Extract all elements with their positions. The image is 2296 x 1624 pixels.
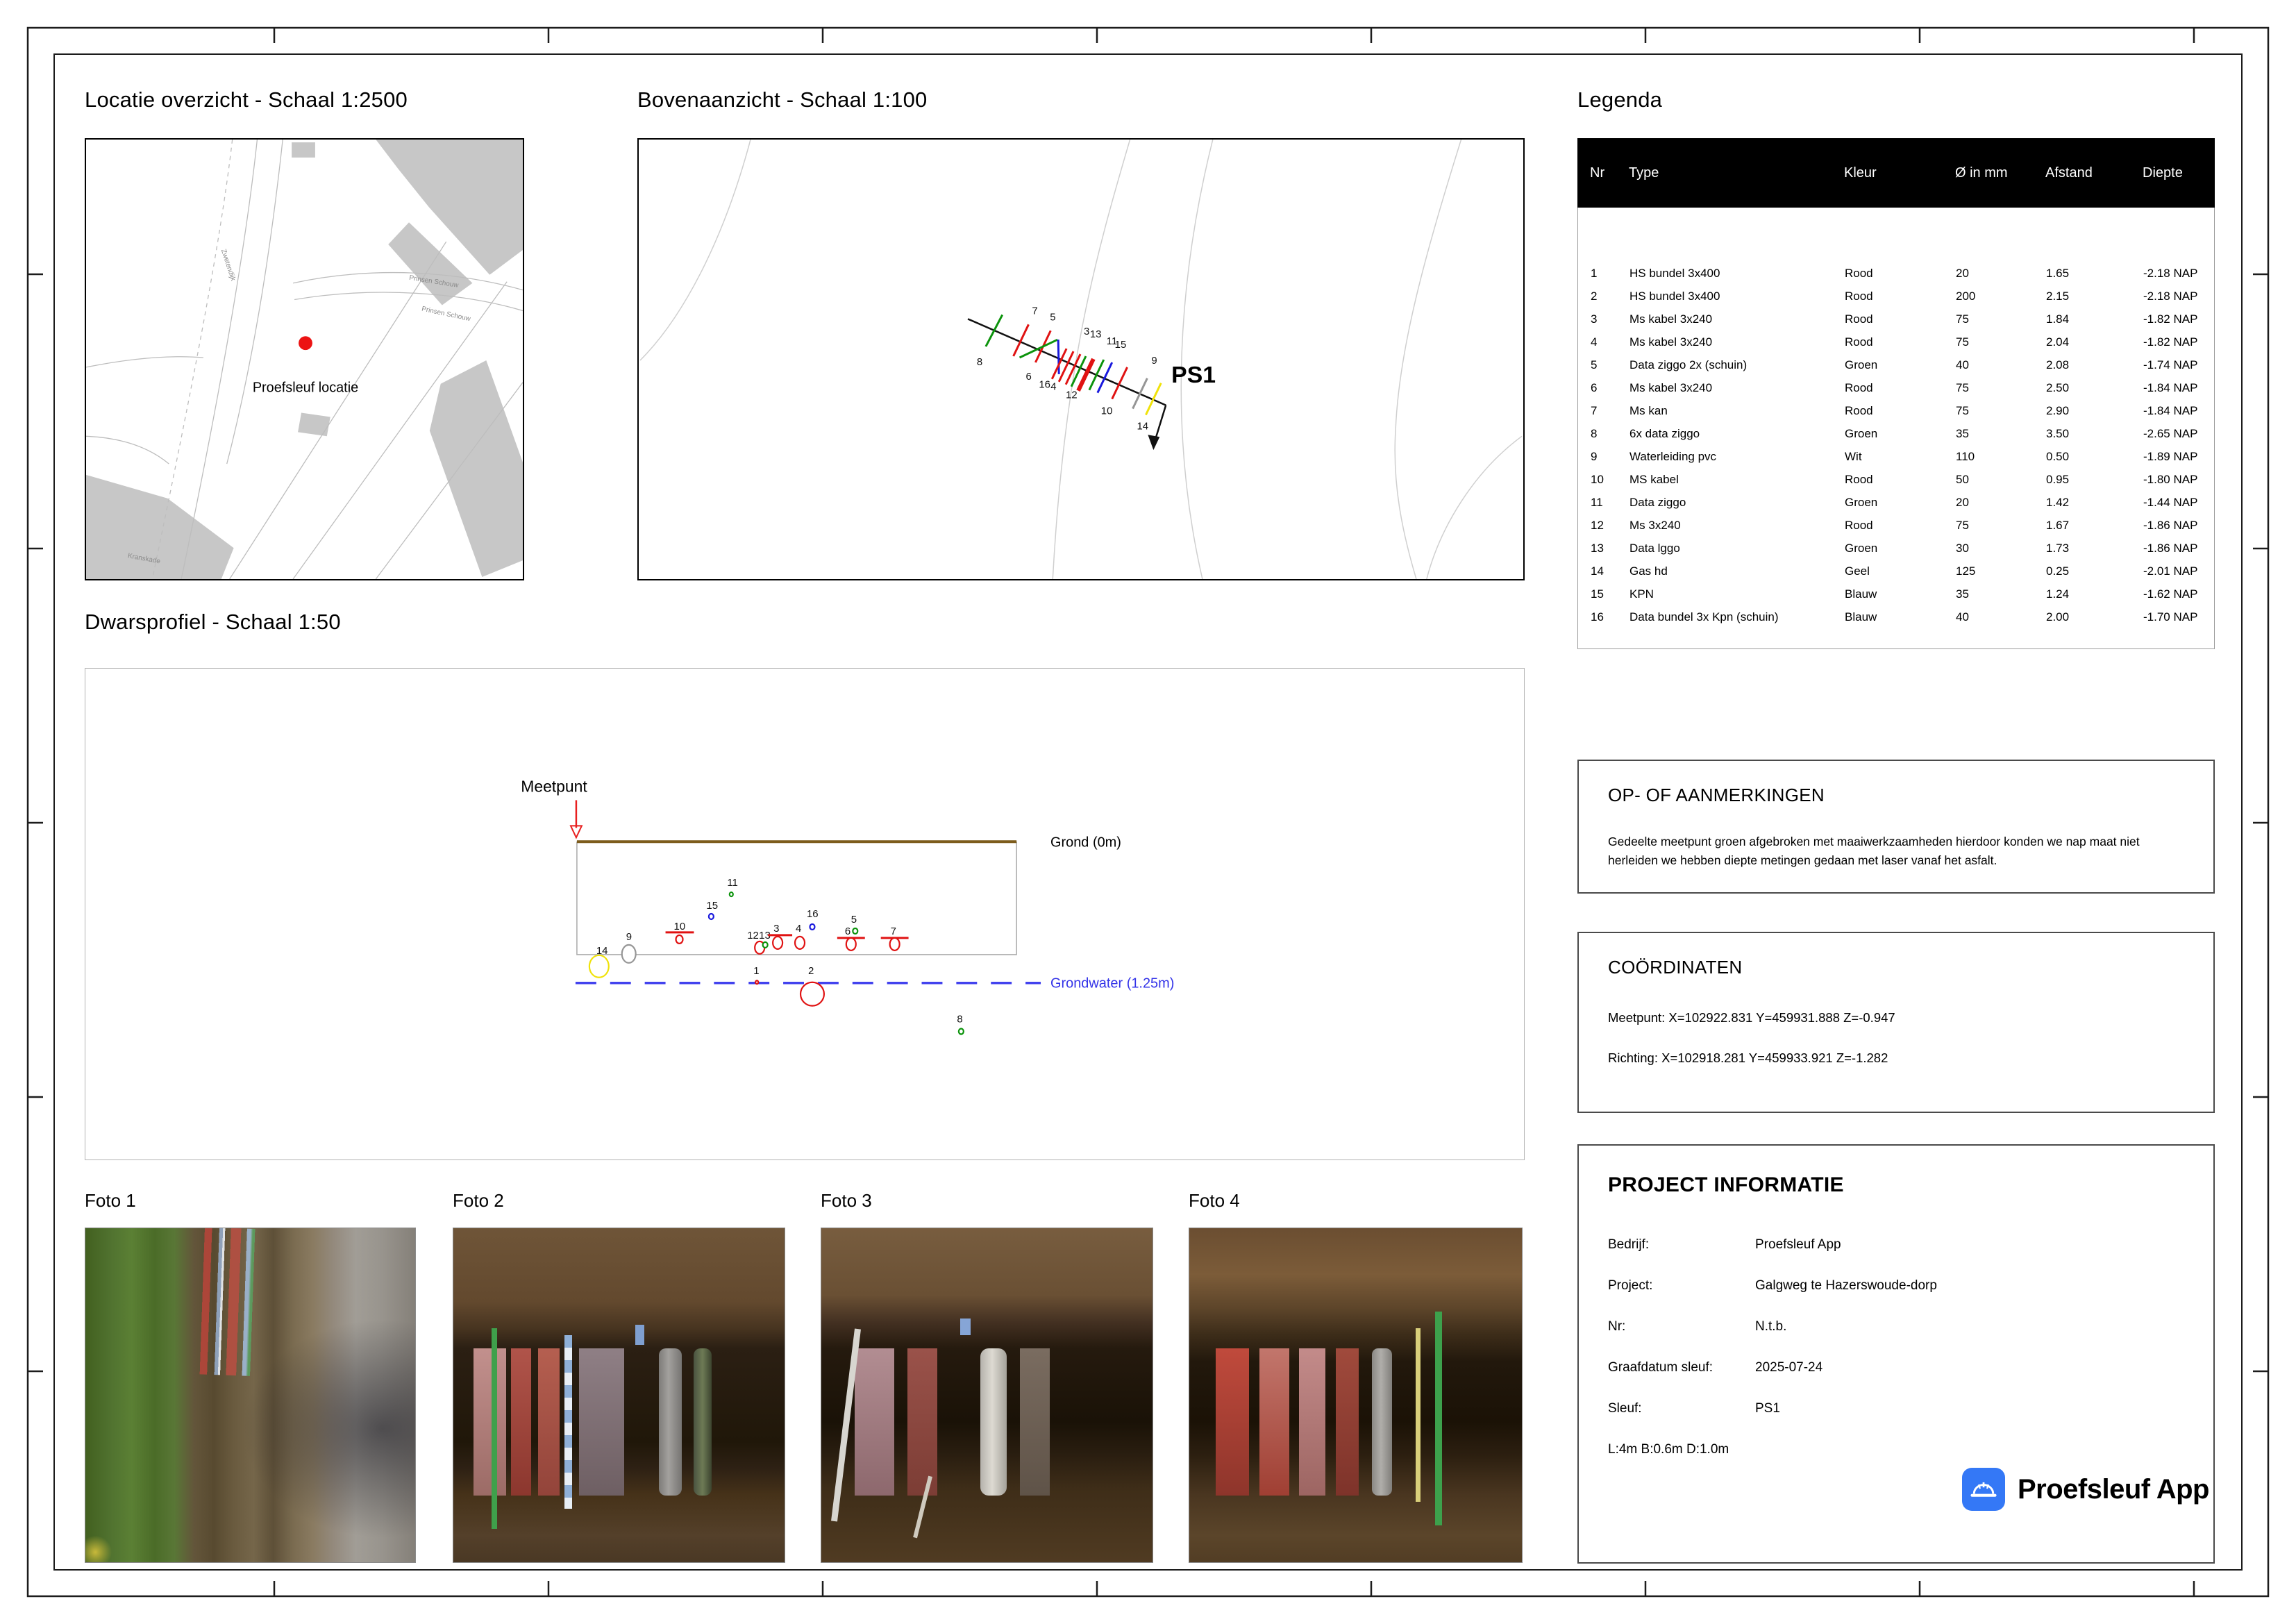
trench-board <box>907 1348 937 1496</box>
legend-cell: Data ziggo 2x (schuin) <box>1629 358 1845 372</box>
legend-header-row: Nr Type Kleur Ø in mm Afstand Diepte <box>1577 138 2215 208</box>
legend-cell: 15 <box>1578 587 1629 601</box>
legend-cell: 125 <box>1956 564 2046 578</box>
legend-cell: Ms kan <box>1629 404 1845 418</box>
legend-cell: 1.65 <box>2046 267 2143 281</box>
legend-cell: 3.50 <box>2046 427 2143 441</box>
legend-row: 3Ms kabel 3x240Rood751.84-1.82 NAP <box>1578 308 2214 330</box>
map-building-shapes <box>86 140 523 579</box>
trench-board <box>1020 1348 1050 1496</box>
trench-board <box>1336 1348 1359 1496</box>
project-field-project: Project: Galgweg te Hazerswoude-dorp <box>1608 1278 2184 1294</box>
project-field-bedrijf: Bedrijf: Proefsleuf App <box>1608 1237 2184 1253</box>
cable-number: 3 <box>1084 326 1089 337</box>
legend-cell: 11 <box>1578 496 1629 510</box>
legend-rows: 1HS bundel 3x400Rood201.65-2.18 NAP2HS b… <box>1578 208 2214 628</box>
cable-section-number: 14 <box>596 945 608 957</box>
legend-cell: 75 <box>1956 519 2046 533</box>
legend-cell: Data lggo <box>1629 542 1845 555</box>
cable-section-red <box>846 938 856 951</box>
legend-cell: -1.82 NAP <box>2143 312 2214 326</box>
legend-row: 86x data ziggoGroen353.50-2.65 NAP <box>1578 422 2214 445</box>
legend-cell: -1.44 NAP <box>2143 496 2214 510</box>
legend-row: 4Ms kabel 3x240Rood752.04-1.82 NAP <box>1578 330 2214 353</box>
legend-cell: 2 <box>1578 290 1629 303</box>
survey-pole <box>564 1335 572 1509</box>
meetpunt-arrow <box>571 800 582 837</box>
legend-cell: 14 <box>1578 564 1629 578</box>
legend-col-type: Type <box>1629 165 1844 181</box>
cable-number-labels: 753131115986164121014 <box>977 305 1157 432</box>
legend-cell: -1.89 NAP <box>2143 450 2214 464</box>
cable-section-yellow <box>589 955 609 978</box>
cable-section-number: 5 <box>851 914 857 926</box>
legend-row: 7Ms kanRood752.90-1.84 NAP <box>1578 399 2214 422</box>
legend-cell: -2.18 NAP <box>2143 267 2214 281</box>
legend-cell: Ms 3x240 <box>1629 519 1845 533</box>
dwarsprofiel-title: Dwarsprofiel - Schaal 1:50 <box>85 610 341 635</box>
marker-tag <box>635 1325 644 1345</box>
cable-section-green <box>730 892 733 896</box>
legend-col-diepte: Diepte <box>2143 165 2215 181</box>
legend-cell: -2.18 NAP <box>2143 290 2214 303</box>
legend-row: 6Ms kabel 3x240Rood752.50-1.84 NAP <box>1578 376 2214 399</box>
legend-cell: 35 <box>1956 587 2046 601</box>
legend-cell: 4 <box>1578 335 1629 349</box>
street-label: Zwetendijk <box>219 249 237 283</box>
legend-cell: -1.80 NAP <box>2143 473 2214 487</box>
legend-cell: 75 <box>1956 404 2046 418</box>
legend-cell: 13 <box>1578 542 1629 555</box>
cable-section-gray <box>622 945 636 963</box>
trench-board <box>511 1348 531 1496</box>
plan-road-edges <box>640 140 1522 579</box>
legend-cell: 7 <box>1578 404 1629 418</box>
cable-section-number: 6 <box>845 926 850 937</box>
legend-table: Nr Type Kleur Ø in mm Afstand Diepte 1HS… <box>1577 138 2215 649</box>
trench-board <box>1299 1348 1325 1496</box>
cable-tick-green <box>986 315 1003 346</box>
legend-cell: 0.25 <box>2046 564 2143 578</box>
legend-cell: 50 <box>1956 473 2046 487</box>
cable-section-number: 3 <box>773 923 779 935</box>
legend-col-afstand: Afstand <box>2045 165 2143 181</box>
legend-cell: Rood <box>1845 335 1956 349</box>
pipe <box>1372 1348 1392 1496</box>
foto1-label: Foto 1 <box>85 1190 136 1212</box>
legend-cell: HS bundel 3x400 <box>1629 290 1845 303</box>
project-field-sleuf: Sleuf: PS1 <box>1608 1401 2184 1416</box>
foto2-image <box>453 1228 785 1563</box>
cable-section-red <box>890 938 900 951</box>
project-field-graafdatum: Graafdatum sleuf: 2025-07-24 <box>1608 1360 2184 1375</box>
legend-cell: HS bundel 3x400 <box>1629 267 1845 281</box>
legend-cell: -2.01 NAP <box>2143 564 2214 578</box>
legend-cell: 2.90 <box>2046 404 2143 418</box>
legenda-title: Legenda <box>1577 87 1662 112</box>
legend-cell: -1.84 NAP <box>2143 381 2214 395</box>
cable-section-blue <box>810 924 814 930</box>
cable-section-number: 12 <box>747 930 759 941</box>
foto4-image <box>1189 1228 1523 1563</box>
cable-section-number: 2 <box>808 965 814 977</box>
project-info-panel: PROJECT INFORMATIE Bedrijf: Proefsleuf A… <box>1577 1144 2215 1564</box>
legend-cell: 35 <box>1956 427 2046 441</box>
hardhat-icon <box>1962 1468 2005 1511</box>
app-logo-text: Proefsleuf App <box>2018 1474 2209 1505</box>
legend-col-nr: Nr <box>1577 165 1629 181</box>
foto4-label: Foto 4 <box>1189 1190 1240 1212</box>
cable-tick-gray <box>1133 378 1148 409</box>
legend-cell: 3 <box>1578 312 1629 326</box>
meetpunt-label: Meetpunt <box>521 777 587 795</box>
legend-cell: 10 <box>1578 473 1629 487</box>
foto2-label: Foto 2 <box>453 1190 504 1212</box>
coordinates-meetpunt: Meetpunt: X=102922.831 Y=459931.888 Z=-0… <box>1608 1010 2184 1026</box>
cable-section-red <box>795 937 805 949</box>
legend-row: 12Ms 3x240Rood751.67-1.86 NAP <box>1578 514 2214 537</box>
legend-cell: Groen <box>1845 358 1956 372</box>
trench-board <box>1259 1348 1289 1496</box>
coordinates-richting: Richting: X=102918.281 Y=459933.921 Z=-1… <box>1608 1050 2184 1066</box>
bovenaanzicht-panel: 753131115986164121014 PS1 <box>637 138 1525 580</box>
remarks-title: OP- OF AANMERKINGEN <box>1608 785 2184 806</box>
legend-cell: Rood <box>1845 290 1956 303</box>
cable-number: 6 <box>1026 371 1032 383</box>
cable-section-number: 16 <box>807 908 819 920</box>
legend-cell: -1.74 NAP <box>2143 358 2214 372</box>
legend-row: 13Data lggoGroen301.73-1.86 NAP <box>1578 537 2214 560</box>
legend-cell: 20 <box>1956 496 2046 510</box>
legend-cell: Gas hd <box>1629 564 1845 578</box>
legend-row: 11Data ziggoGroen201.42-1.44 NAP <box>1578 491 2214 514</box>
proefsleuf-report-sheet: { "locatie": { "title": "Locatie overzic… <box>0 0 2296 1624</box>
coordinates-panel: COÖRDINATEN Meetpunt: X=102922.831 Y=459… <box>1577 932 2215 1113</box>
legend-cell: 1.24 <box>2046 587 2143 601</box>
cable-number: 14 <box>1137 421 1148 432</box>
legend-row: 14Gas hdGeel1250.25-2.01 NAP <box>1578 560 2214 583</box>
trench-location-marker <box>299 336 312 350</box>
cable-section-number: 10 <box>674 921 686 932</box>
legend-cell: 0.95 <box>2046 473 2143 487</box>
legend-cell: Waterleiding pvc <box>1629 450 1845 464</box>
legend-cell: -1.62 NAP <box>2143 587 2214 601</box>
legend-cell: 1.67 <box>2046 519 2143 533</box>
cable-section-green <box>853 928 857 934</box>
legend-cell: 1.84 <box>2046 312 2143 326</box>
legend-cell: 200 <box>1956 290 2046 303</box>
cable-number: 7 <box>1032 305 1037 317</box>
cable-number: 5 <box>1050 312 1055 323</box>
legend-cell: -2.65 NAP <box>2143 427 2214 441</box>
cable-tick-red <box>1059 351 1073 382</box>
stick <box>1416 1328 1421 1502</box>
legend-cell: Groen <box>1845 542 1956 555</box>
legend-row: 1HS bundel 3x400Rood201.65-2.18 NAP <box>1578 262 2214 285</box>
trench-board <box>474 1348 507 1496</box>
remarks-panel: OP- OF AANMERKINGEN Gedeelte meetpunt gr… <box>1577 760 2215 894</box>
legend-cell: Groen <box>1845 427 1956 441</box>
locatie-title: Locatie overzicht - Schaal 1:2500 <box>85 87 408 112</box>
street-label: Prinsen Schouw <box>421 305 471 324</box>
legend-cell: 1.73 <box>2046 542 2143 555</box>
legend-cell: 2.00 <box>2046 610 2143 624</box>
legend-cell: 75 <box>1956 312 2046 326</box>
legend-row: 2HS bundel 3x400Rood2002.15-2.18 NAP <box>1578 285 2214 308</box>
legend-row: 5Data ziggo 2x (schuin)Groen402.08-1.74 … <box>1578 353 2214 376</box>
cable-section-red <box>773 937 782 949</box>
legend-cell: -1.70 NAP <box>2143 610 2214 624</box>
dwarsprofiel-drawing: Meetpunt Grond (0m) Grondwater (1.25m) 1… <box>85 669 1524 1160</box>
trench-location-label: Proefsleuf locatie <box>253 380 358 396</box>
cable-section-blue <box>709 914 714 919</box>
legend-cell: 8 <box>1578 427 1629 441</box>
trench-ps1-label: PS1 <box>1171 362 1216 388</box>
locatie-map: Proefsleuf locatie ZwetendijkPrinsen Sch… <box>86 140 523 579</box>
legend-cell: Rood <box>1845 519 1956 533</box>
measuring-rod <box>492 1328 497 1529</box>
cable-section-red <box>755 980 758 984</box>
legend-cell: 110 <box>1956 450 2046 464</box>
legend-cell: Blauw <box>1845 587 1956 601</box>
project-field-nr: Nr: N.t.b. <box>1608 1319 2184 1334</box>
legend-col-diameter: Ø in mm <box>1955 165 2045 181</box>
cable-section-number: 4 <box>796 923 801 935</box>
pipe <box>980 1348 1007 1496</box>
legend-cell: 6x data ziggo <box>1629 427 1845 441</box>
measuring-rod <box>1435 1312 1441 1525</box>
marker-tag <box>960 1319 970 1335</box>
legend-cell: -1.86 NAP <box>2143 519 2214 533</box>
legend-cell: Rood <box>1845 473 1956 487</box>
legend-cell: Data bundel 3x Kpn (schuin) <box>1629 610 1845 624</box>
legend-cell: Blauw <box>1845 610 1956 624</box>
cable-section-green <box>959 1029 964 1035</box>
cable-number: 15 <box>1115 340 1127 351</box>
legend-cell: Groen <box>1845 496 1956 510</box>
coordinates-title: COÖRDINATEN <box>1608 957 2184 978</box>
project-dimensions: L:4m B:0.6m D:1.0m <box>1608 1442 2184 1457</box>
cable-section-red <box>676 935 683 944</box>
locatie-map-panel: Proefsleuf locatie ZwetendijkPrinsen Sch… <box>85 138 524 580</box>
legend-row: 16Data bundel 3x Kpn (schuin)Blauw402.00… <box>1578 605 2214 628</box>
cable-section-green <box>763 942 768 948</box>
cable-section-number: 8 <box>957 1014 962 1026</box>
legend-cell: 75 <box>1956 335 2046 349</box>
legend-cell: -1.82 NAP <box>2143 335 2214 349</box>
direction-arrow <box>1148 405 1166 451</box>
legend-row: 10MS kabelRood500.95-1.80 NAP <box>1578 468 2214 491</box>
legend-cell: 20 <box>1956 267 2046 281</box>
legend-cell: 2.08 <box>2046 358 2143 372</box>
cable-number: 10 <box>1101 406 1113 417</box>
app-logo: Proefsleuf App <box>1962 1468 2209 1511</box>
trench-board <box>538 1348 560 1496</box>
cable-number: 12 <box>1066 390 1078 401</box>
legend-cell: Geel <box>1845 564 1956 578</box>
trench-board <box>579 1348 623 1496</box>
cable-section-number: 7 <box>891 926 896 937</box>
dwarsprofiel-panel: Meetpunt Grond (0m) Grondwater (1.25m) 1… <box>85 668 1525 1160</box>
legend-cell: Rood <box>1845 312 1956 326</box>
cable-cross-sections: 14910151112133416567128 <box>589 877 964 1034</box>
legend-cell: 1.42 <box>2046 496 2143 510</box>
cable-section-number: 9 <box>626 931 632 943</box>
foto3-label: Foto 3 <box>821 1190 872 1212</box>
legend-cell: Wit <box>1845 450 1956 464</box>
cable-number: 13 <box>1090 329 1102 340</box>
legend-row: 15KPNBlauw351.24-1.62 NAP <box>1578 583 2214 605</box>
legend-cell: 6 <box>1578 381 1629 395</box>
trench-board <box>855 1348 894 1496</box>
cable-number: 4 <box>1050 382 1056 393</box>
legend-cell: Rood <box>1845 381 1956 395</box>
legend-row: 9Waterleiding pvcWit1100.50-1.89 NAP <box>1578 445 2214 468</box>
trench-board <box>1216 1348 1249 1496</box>
legend-cell: KPN <box>1629 587 1845 601</box>
legend-cell: 75 <box>1956 381 2046 395</box>
cable-number: 16 <box>1039 380 1050 391</box>
cable-section-number: 15 <box>706 900 718 912</box>
cable-number: 9 <box>1151 355 1157 367</box>
cable-tick-yellow <box>1146 383 1161 415</box>
legend-cell: 30 <box>1956 542 2046 555</box>
bovenaanzicht-title: Bovenaanzicht - Schaal 1:100 <box>637 87 928 112</box>
legend-col-kleur: Kleur <box>1844 165 1955 181</box>
legend-cell: MS kabel <box>1629 473 1845 487</box>
legend-cell: 12 <box>1578 519 1629 533</box>
legend-cell: Ms kabel 3x240 <box>1629 381 1845 395</box>
pipe <box>659 1348 682 1496</box>
cable-section-number: 11 <box>727 877 738 889</box>
pipe <box>694 1348 712 1496</box>
legend-cell: 1 <box>1578 267 1629 281</box>
legend-cell: Rood <box>1845 404 1956 418</box>
legend-cell: -1.84 NAP <box>2143 404 2214 418</box>
legend-cell: 0.50 <box>2046 450 2143 464</box>
legend-cell: 5 <box>1578 358 1629 372</box>
legend-cell: 16 <box>1578 610 1629 624</box>
legend-cell: -1.86 NAP <box>2143 542 2214 555</box>
legend-cell: Ms kabel 3x240 <box>1629 312 1845 326</box>
foto3-image <box>821 1228 1153 1563</box>
cable-section-red <box>801 982 824 1006</box>
legend-cell: Ms kabel 3x240 <box>1629 335 1845 349</box>
legend-cell: 40 <box>1956 358 2046 372</box>
legend-cell: 9 <box>1578 450 1629 464</box>
legend-cell: Data ziggo <box>1629 496 1845 510</box>
cable-section-number: 1 <box>753 965 759 977</box>
cable-number: 8 <box>977 357 982 368</box>
legend-cell: 40 <box>1956 610 2046 624</box>
groundwater-label: Grondwater (1.25m) <box>1050 976 1174 991</box>
project-info-title: PROJECT INFORMATIE <box>1608 1173 2184 1197</box>
bovenaanzicht-drawing: 753131115986164121014 PS1 <box>639 140 1523 579</box>
legend-cell: 2.50 <box>2046 381 2143 395</box>
legend-cell: 2.15 <box>2046 290 2143 303</box>
foto1-image <box>85 1228 416 1563</box>
remarks-text: Gedeelte meetpunt groen afgebroken met m… <box>1608 832 2184 870</box>
legend-cell: Rood <box>1845 267 1956 281</box>
ground-label: Grond (0m) <box>1050 835 1121 850</box>
legend-cell: 2.04 <box>2046 335 2143 349</box>
cable-tick-blue <box>1058 340 1059 374</box>
